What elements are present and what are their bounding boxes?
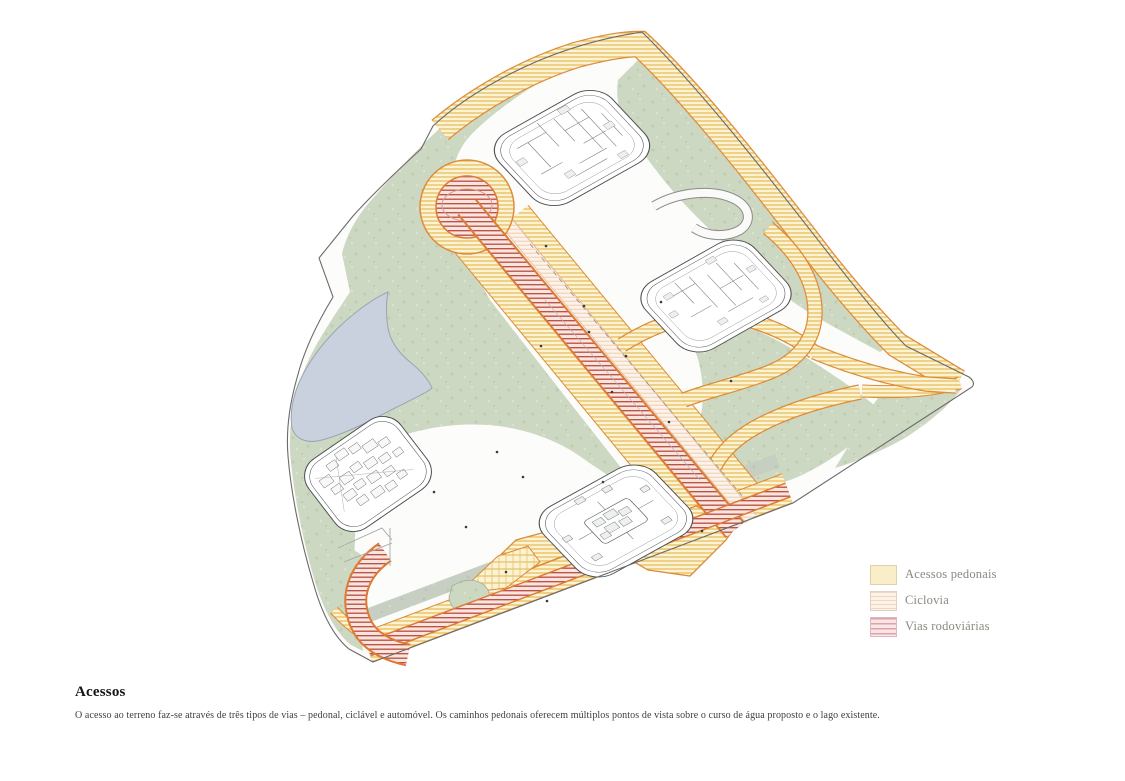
legend-label: Acessos pedonais xyxy=(905,567,997,582)
legend-label: Vias rodoviárias xyxy=(905,619,990,634)
page-title: Acessos xyxy=(75,684,1075,701)
site-plan-figure xyxy=(0,0,1125,781)
presentation-page: Acessos pedonais Ciclovia Vias rodoviári… xyxy=(0,0,1125,781)
roads-swatch-icon xyxy=(870,617,897,637)
title-block: Acessos O acesso ao terreno faz-se atrav… xyxy=(75,684,1075,721)
page-description: O acesso ao terreno faz-se através de tr… xyxy=(75,710,1075,721)
cycleway-swatch-icon xyxy=(870,591,897,611)
pedestrian-swatch-icon xyxy=(870,565,897,585)
legend-item-roads: Vias rodoviárias xyxy=(870,616,997,637)
legend-label: Ciclovia xyxy=(905,593,949,608)
legend-item-cycleway: Ciclovia xyxy=(870,590,997,611)
legend: Acessos pedonais Ciclovia Vias rodoviári… xyxy=(870,564,997,642)
legend-item-pedestrian: Acessos pedonais xyxy=(870,564,997,585)
